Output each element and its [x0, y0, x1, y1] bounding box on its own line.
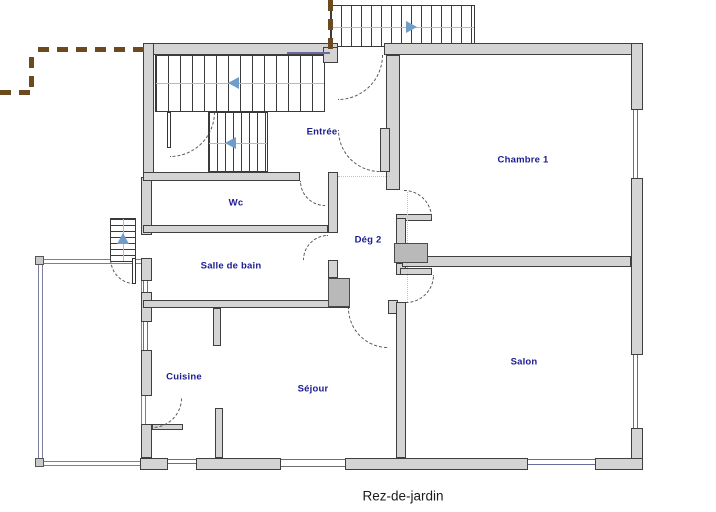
room-label-cuisine: Cuisine [166, 372, 202, 383]
wall-deg-east-upper [396, 218, 406, 245]
stair-interior-lower [208, 112, 268, 172]
wall-bottom-segment [595, 458, 643, 470]
door-leaf-exterior-left [132, 258, 136, 284]
stair-exterior-top [330, 5, 475, 47]
room-label-deg2: Dég 2 [355, 235, 382, 246]
door-arc-wc [300, 181, 325, 206]
wall-sejour-salon [396, 302, 406, 458]
stair-arrow-left-icon [228, 77, 239, 89]
property-line [328, 0, 333, 50]
wall-bottom-segment [140, 458, 168, 470]
wall-left-segment [141, 424, 152, 458]
separator-deg2-east [407, 192, 408, 243]
wall-left-segment [141, 258, 152, 281]
window-salon-east [633, 355, 638, 428]
window-left-upper [143, 281, 148, 292]
stair-centerline [331, 27, 474, 28]
wall-wc-east [328, 172, 338, 233]
door-arc-entree-deg2 [338, 130, 380, 172]
wall-right-upper [631, 43, 643, 110]
door-arc-chambre1 [404, 190, 432, 218]
stair-exterior-left [110, 218, 136, 262]
stair-interior-main [155, 55, 325, 112]
stair-arrow-left-icon [225, 137, 236, 149]
floor-plan-canvas: Entrée Chambre 1 Wc Dég 2 Salle de bain … [0, 0, 716, 512]
wall-salon-door-stub [400, 268, 432, 275]
wall-cuisine-stub-south [215, 408, 223, 458]
stair-centerline [156, 83, 324, 84]
room-label-chambre1: Chambre 1 [498, 155, 549, 166]
door-arc-sejour [348, 308, 388, 348]
property-line [29, 57, 34, 88]
room-label-wc: Wc [229, 198, 244, 209]
window-cuisine [168, 459, 196, 464]
wall-bottom-segment [345, 458, 528, 470]
wall-wc-sdb [143, 225, 328, 233]
wall-top-right [384, 43, 643, 55]
wall-sdb-east [328, 260, 338, 278]
room-label-entree: Entrée [307, 127, 338, 138]
door-arc-salle-de-bain [303, 235, 328, 260]
wall-bottom-segment [196, 458, 281, 470]
property-line [38, 47, 145, 52]
wall-cuisine-stub-north [213, 308, 221, 346]
door-arc-entrance [338, 55, 383, 100]
door-arc-salon [406, 275, 434, 303]
stair-arrow-up-icon [117, 233, 129, 244]
door-leaf-hall [167, 112, 171, 148]
window-hall-top [287, 52, 330, 54]
wall-hall-south [143, 172, 300, 181]
terrace-corner-bracket [35, 256, 44, 265]
wall-entree-stub [380, 128, 390, 172]
duct-block [328, 278, 350, 307]
room-label-salon: Salon [511, 357, 538, 368]
plan-caption: Rez-de-jardin [362, 489, 443, 504]
room-label-sejour: Séjour [298, 384, 329, 395]
wall-left-segment [141, 350, 152, 396]
duct-block [394, 243, 428, 263]
window-salon-south [528, 459, 595, 465]
window-chambre1 [633, 110, 638, 178]
window-sejour-slider [281, 459, 345, 467]
terrace-corner-bracket [35, 458, 44, 467]
separator-deg2-east [407, 263, 408, 302]
property-line [0, 90, 30, 95]
wall-right-mid [631, 178, 643, 355]
stair-centerline [209, 143, 267, 144]
room-label-salle-de-bain: Salle de bain [201, 261, 262, 272]
terrace-outline-inner [42, 263, 142, 462]
wall-left-stairblock [143, 43, 154, 177]
wall-sdb-south [143, 300, 350, 308]
stair-arrow-right-icon [406, 21, 417, 33]
window-left-lower [143, 322, 148, 350]
wall-chambre1-salon [402, 256, 631, 267]
separator-entree-deg2 [338, 176, 390, 177]
